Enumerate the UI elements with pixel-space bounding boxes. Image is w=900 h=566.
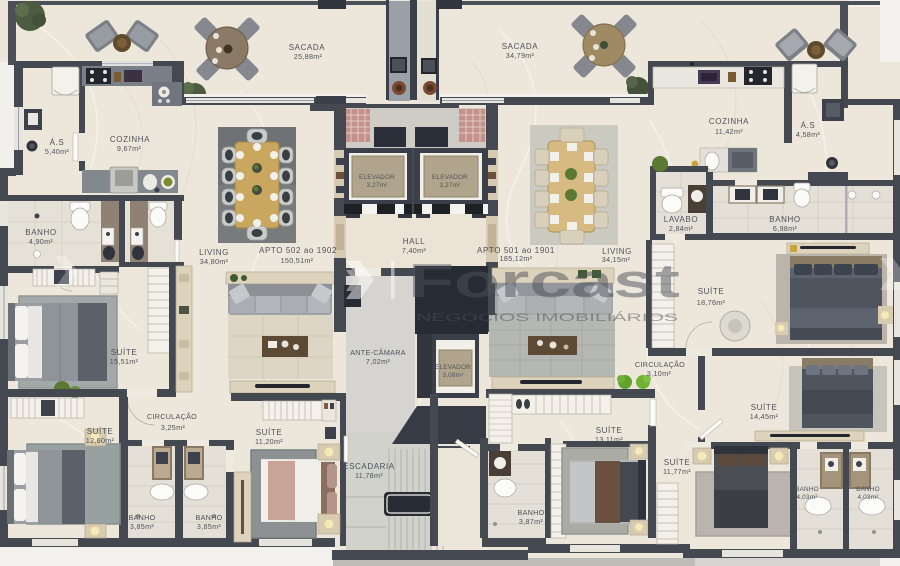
svg-text:4,03m²: 4,03m²	[796, 494, 817, 501]
svg-text:11,42m²: 11,42m²	[715, 127, 743, 136]
svg-text:COZINHA: COZINHA	[110, 135, 150, 144]
svg-text:SUÍTE: SUÍTE	[111, 348, 138, 357]
svg-text:11,78m²: 11,78m²	[355, 471, 383, 480]
svg-text:BANHO: BANHO	[795, 486, 819, 493]
svg-text:3,85m²: 3,85m²	[197, 522, 221, 531]
svg-text:ELEVADOR: ELEVADOR	[435, 364, 471, 371]
svg-text:BANHO: BANHO	[128, 513, 155, 522]
svg-text:150,51m²: 150,51m²	[281, 256, 314, 265]
svg-text:ESCADARIA: ESCADARIA	[343, 462, 395, 471]
svg-text:CIRCULAÇÃO: CIRCULAÇÃO	[147, 412, 197, 421]
svg-text:SUÍTE: SUÍTE	[256, 428, 283, 437]
svg-text:4,03m²: 4,03m²	[857, 494, 878, 501]
svg-text:ELEVADOR: ELEVADOR	[432, 174, 468, 181]
svg-text:BANHO: BANHO	[25, 228, 56, 237]
svg-text:BANHO: BANHO	[195, 513, 222, 522]
svg-text:25,88m²: 25,88m²	[294, 52, 323, 61]
svg-text:SUÍTE: SUÍTE	[87, 427, 114, 436]
svg-text:3,85m²: 3,85m²	[130, 522, 154, 531]
svg-text:ELEVADOR: ELEVADOR	[359, 174, 395, 181]
svg-text:COZINHA: COZINHA	[709, 117, 749, 126]
svg-text:5,40m²: 5,40m²	[45, 147, 69, 156]
svg-text:7,02m²: 7,02m²	[366, 357, 390, 366]
svg-text:3,27m²: 3,27m²	[439, 182, 460, 189]
svg-text:Á.S: Á.S	[50, 138, 65, 147]
svg-text:NEGÓCIOS IMOBILIÁRIOS: NEGÓCIOS IMOBILIÁRIOS	[416, 311, 678, 324]
svg-text:18,76m²: 18,76m²	[697, 298, 726, 307]
svg-text:6,98m²: 6,98m²	[773, 224, 797, 233]
svg-text:Á.S: Á.S	[801, 121, 816, 130]
svg-text:3,27m²: 3,27m²	[366, 182, 387, 189]
svg-text:3,87m²: 3,87m²	[519, 517, 543, 526]
svg-text:11,77m²: 11,77m²	[663, 467, 691, 476]
svg-text:3,25m²: 3,25m²	[161, 423, 185, 432]
svg-text:LAVABO: LAVABO	[664, 215, 698, 224]
svg-text:LIVING: LIVING	[199, 248, 229, 257]
svg-text:SUÍTE: SUÍTE	[596, 426, 623, 435]
svg-text:SACADA: SACADA	[502, 42, 539, 51]
svg-text:SACADA: SACADA	[289, 43, 326, 52]
svg-text:APTO 502 ao 1902: APTO 502 ao 1902	[259, 246, 337, 255]
svg-text:12,60m²: 12,60m²	[86, 436, 115, 445]
svg-text:3,10m²: 3,10m²	[647, 369, 671, 378]
svg-text:SUÍTE: SUÍTE	[664, 458, 691, 467]
svg-text:CIRCULAÇÃO: CIRCULAÇÃO	[635, 360, 685, 369]
svg-text:34,80m²: 34,80m²	[200, 257, 229, 266]
svg-text:2,84m²: 2,84m²	[669, 224, 693, 233]
svg-text:SUÍTE: SUÍTE	[751, 403, 778, 412]
svg-text:13,11m²: 13,11m²	[595, 435, 623, 444]
svg-text:HALL: HALL	[403, 237, 425, 246]
svg-text:BANHO: BANHO	[856, 486, 880, 493]
svg-text:11,20m²: 11,20m²	[255, 437, 283, 446]
svg-text:9,67m²: 9,67m²	[117, 144, 141, 153]
svg-text:3,08m²: 3,08m²	[442, 372, 463, 379]
svg-text:ANTE-CÂMARA: ANTE-CÂMARA	[350, 348, 406, 357]
svg-text:15,51m²: 15,51m²	[110, 357, 139, 366]
svg-text:SUÍTE: SUÍTE	[698, 287, 725, 296]
svg-text:BANHO: BANHO	[517, 508, 544, 517]
svg-text:4,90m²: 4,90m²	[29, 237, 53, 246]
svg-text:4,58m²: 4,58m²	[796, 130, 820, 139]
svg-text:Forcast: Forcast	[408, 254, 681, 307]
svg-text:34,79m²: 34,79m²	[506, 51, 535, 60]
svg-text:BANHO: BANHO	[769, 215, 800, 224]
svg-text:14,45m²: 14,45m²	[750, 412, 779, 421]
